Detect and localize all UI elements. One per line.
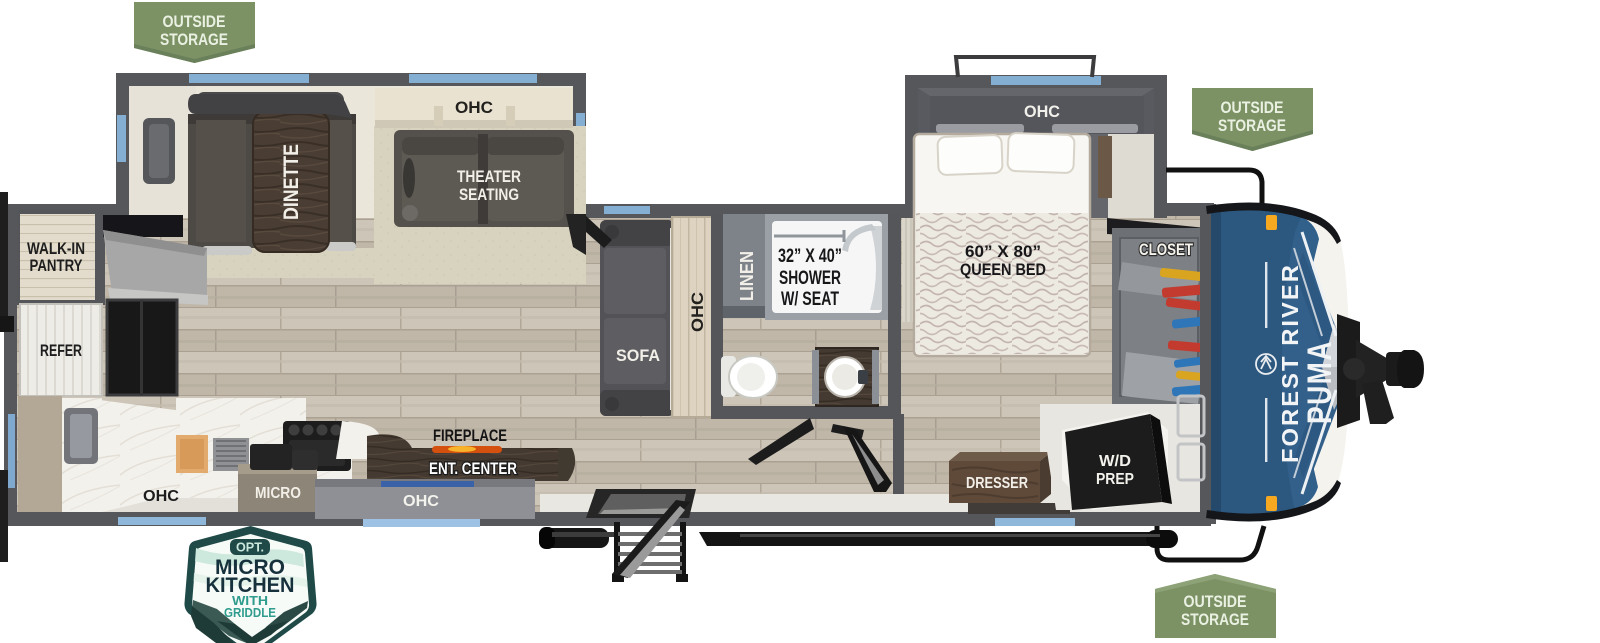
svg-text:W/ SEAT: W/ SEAT <box>781 289 839 310</box>
svg-text:DINETTE: DINETTE <box>280 144 303 220</box>
svg-text:OUTSIDE: OUTSIDE <box>1184 592 1247 611</box>
svg-text:PANTRY: PANTRY <box>30 257 83 275</box>
svg-text:DRESSER: DRESSER <box>966 475 1028 492</box>
svg-text:OHC: OHC <box>1024 102 1060 121</box>
svg-text:STORAGE: STORAGE <box>1181 610 1249 629</box>
svg-text:SOFA: SOFA <box>616 347 660 365</box>
svg-text:32” X 40”: 32” X 40” <box>778 246 842 267</box>
svg-text:ENT. CENTER: ENT. CENTER <box>429 459 517 478</box>
svg-text:WALK-IN: WALK-IN <box>27 240 85 258</box>
svg-text:OHC: OHC <box>403 493 439 510</box>
svg-text:REFER: REFER <box>40 342 82 360</box>
svg-text:STORAGE: STORAGE <box>1218 116 1286 135</box>
svg-text:W/D: W/D <box>1099 453 1131 470</box>
svg-text:OHC: OHC <box>455 98 493 117</box>
svg-text:MICRO: MICRO <box>255 485 301 502</box>
svg-text:OHC: OHC <box>143 488 179 505</box>
svg-text:60” X 80”: 60” X 80” <box>965 243 1041 261</box>
svg-text:CLOSET: CLOSET <box>1139 241 1193 259</box>
svg-text:SEATING: SEATING <box>459 185 519 204</box>
svg-text:FOREST RIVER: FOREST RIVER <box>1277 263 1303 463</box>
svg-text:LINEN: LINEN <box>736 251 757 301</box>
svg-text:SHOWER: SHOWER <box>779 268 841 289</box>
svg-text:STORAGE: STORAGE <box>160 30 228 49</box>
svg-text:FIREPLACE: FIREPLACE <box>433 426 507 445</box>
svg-text:THEATER: THEATER <box>457 167 521 186</box>
svg-text:PREP: PREP <box>1096 471 1134 488</box>
svg-text:OUTSIDE: OUTSIDE <box>163 12 226 31</box>
svg-text:OUTSIDE: OUTSIDE <box>1221 98 1284 117</box>
svg-text:OHC: OHC <box>689 292 707 332</box>
svg-text:OPT.: OPT. <box>236 541 264 555</box>
svg-text:GRIDDLE: GRIDDLE <box>224 605 276 620</box>
svg-text:PUMA: PUMA <box>1301 340 1339 424</box>
svg-text:QUEEN BED: QUEEN BED <box>960 261 1046 279</box>
